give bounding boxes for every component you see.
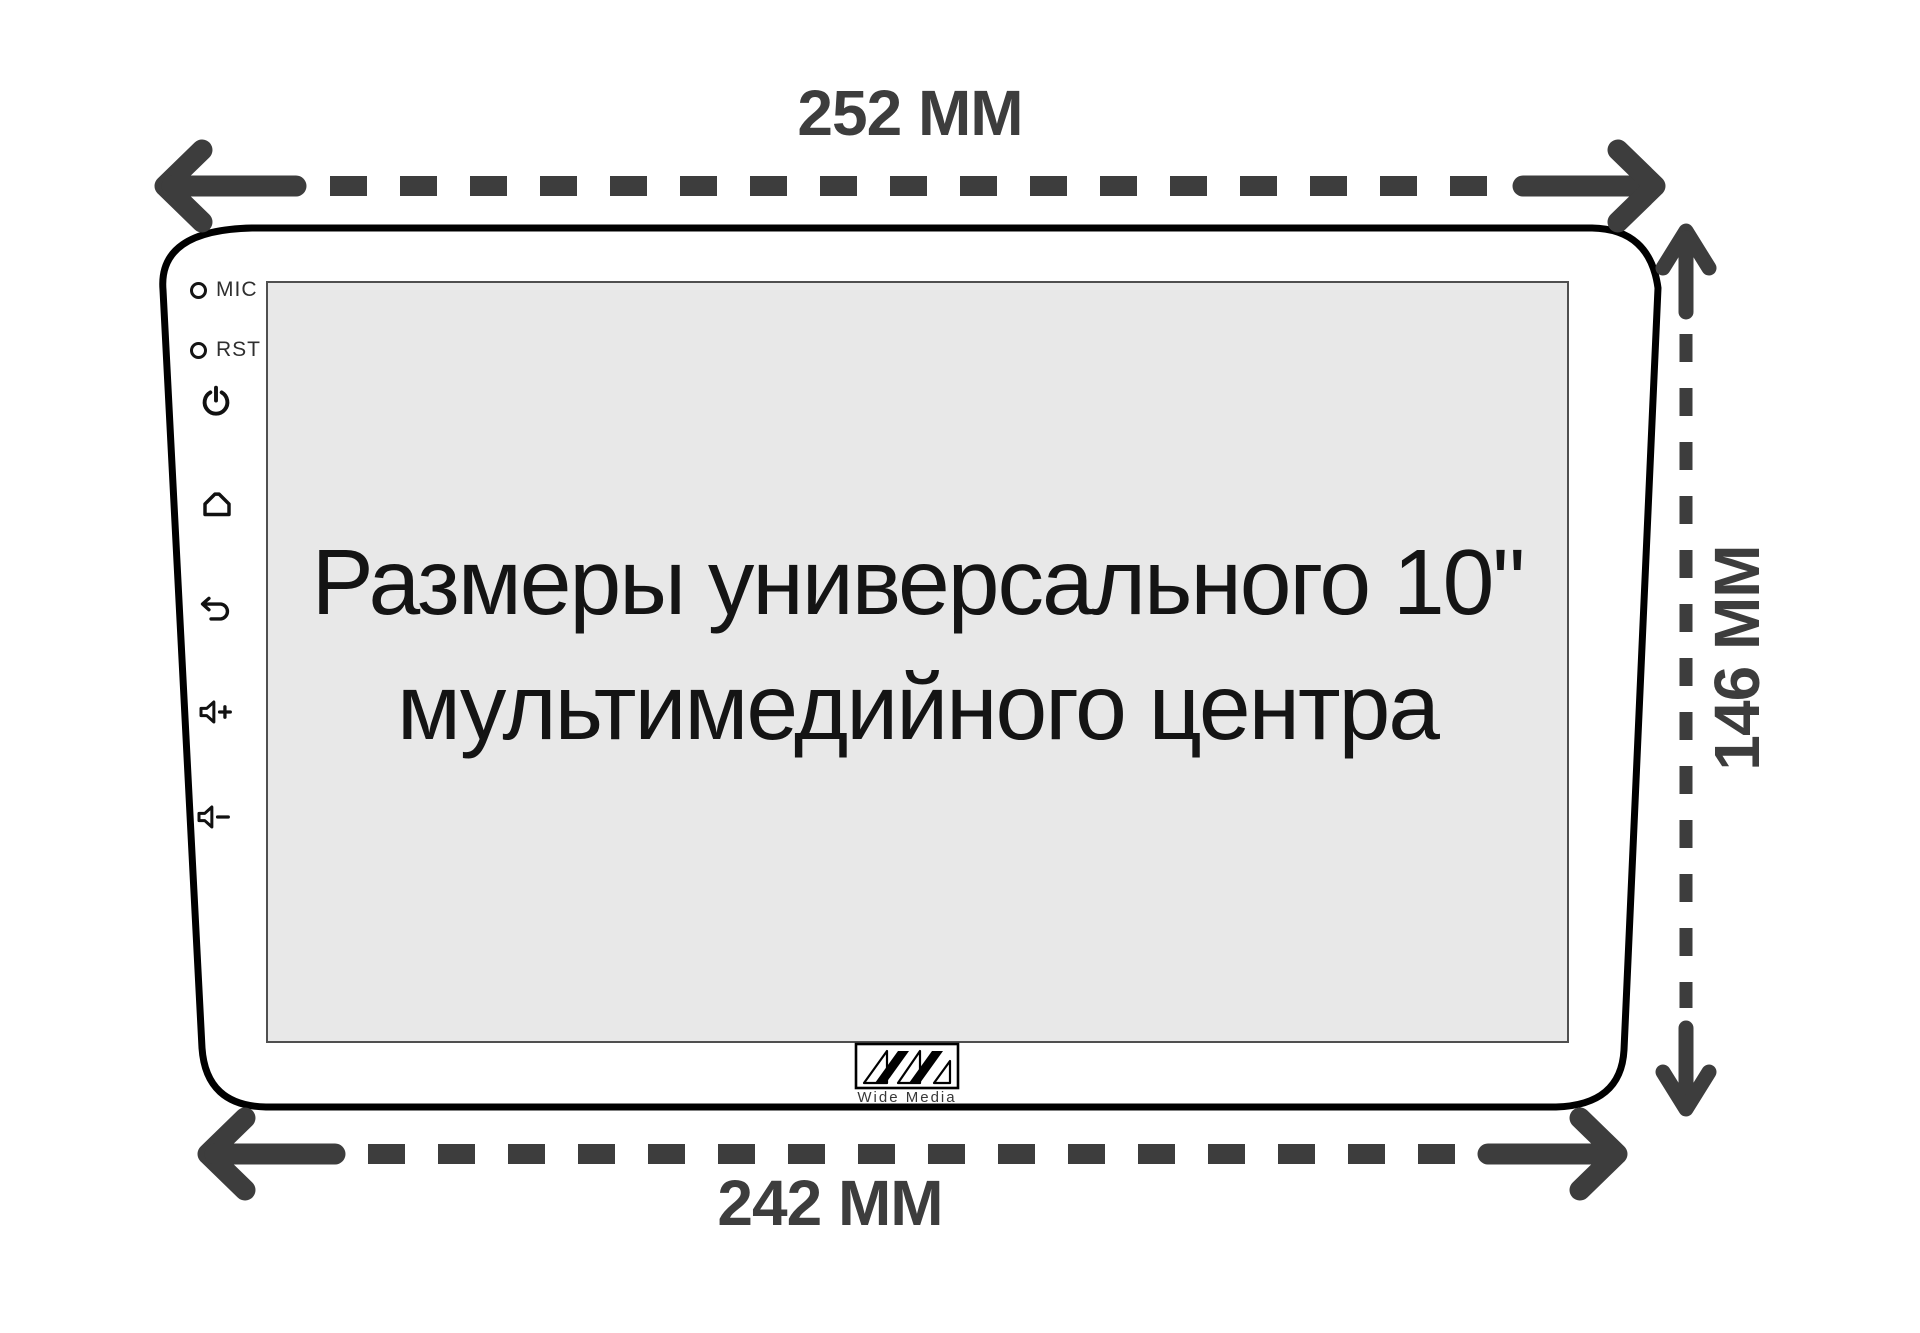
power-icon bbox=[198, 384, 234, 420]
mic-hole-icon bbox=[190, 282, 207, 299]
brand-logo: Wide Media bbox=[845, 1042, 969, 1106]
back-button bbox=[196, 592, 236, 626]
device-screen: Размеры универсального 10" мультимедийно… bbox=[266, 281, 1569, 1043]
mic-indicator: MIC bbox=[190, 278, 258, 302]
rst-hole-icon bbox=[190, 342, 207, 359]
dimension-diagram: 252 MM 242 MM 146 MM Размеры универсальн… bbox=[0, 0, 1920, 1333]
volume-up-icon bbox=[197, 697, 235, 727]
home-button bbox=[198, 486, 236, 522]
mic-label: MIC bbox=[216, 278, 258, 302]
title-line-1: Размеры универсального 10" bbox=[312, 520, 1524, 645]
power-button bbox=[198, 384, 234, 420]
wide-media-logo-icon bbox=[854, 1042, 960, 1090]
top-width-label: 252 MM bbox=[700, 76, 1120, 150]
title-line-2: мультимедийного центра bbox=[397, 645, 1438, 770]
side-height-label: 146 MM bbox=[1702, 508, 1772, 808]
top-dimension-arrow bbox=[165, 150, 1655, 222]
rst-indicator: RST bbox=[190, 338, 261, 362]
volume-up-button bbox=[197, 697, 235, 727]
volume-down-button bbox=[195, 802, 233, 832]
home-icon bbox=[198, 486, 236, 522]
volume-down-icon bbox=[195, 802, 233, 832]
back-icon bbox=[196, 592, 236, 626]
brand-name: Wide Media bbox=[845, 1089, 969, 1106]
rst-label: RST bbox=[216, 338, 261, 362]
bottom-width-label: 242 MM bbox=[620, 1166, 1040, 1240]
